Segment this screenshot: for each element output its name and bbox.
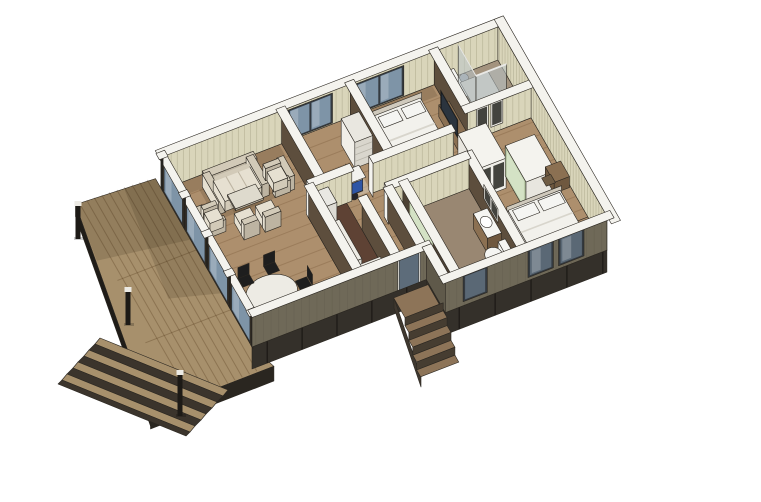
deck-post <box>178 374 183 416</box>
window-glare <box>562 236 571 261</box>
closet-door-panel <box>493 162 504 190</box>
deck-post-cap <box>177 370 184 375</box>
deck-post-cap <box>75 201 82 206</box>
deck-post <box>126 291 131 325</box>
window-glare <box>532 248 541 273</box>
window-glare <box>312 100 319 128</box>
floor-plan-3d-render <box>0 0 761 502</box>
linen-door-panel <box>492 101 501 126</box>
floor-plan-page <box>0 0 761 502</box>
deck-post-cap <box>125 287 132 292</box>
window-glare <box>381 73 389 101</box>
deck-post <box>76 205 81 239</box>
